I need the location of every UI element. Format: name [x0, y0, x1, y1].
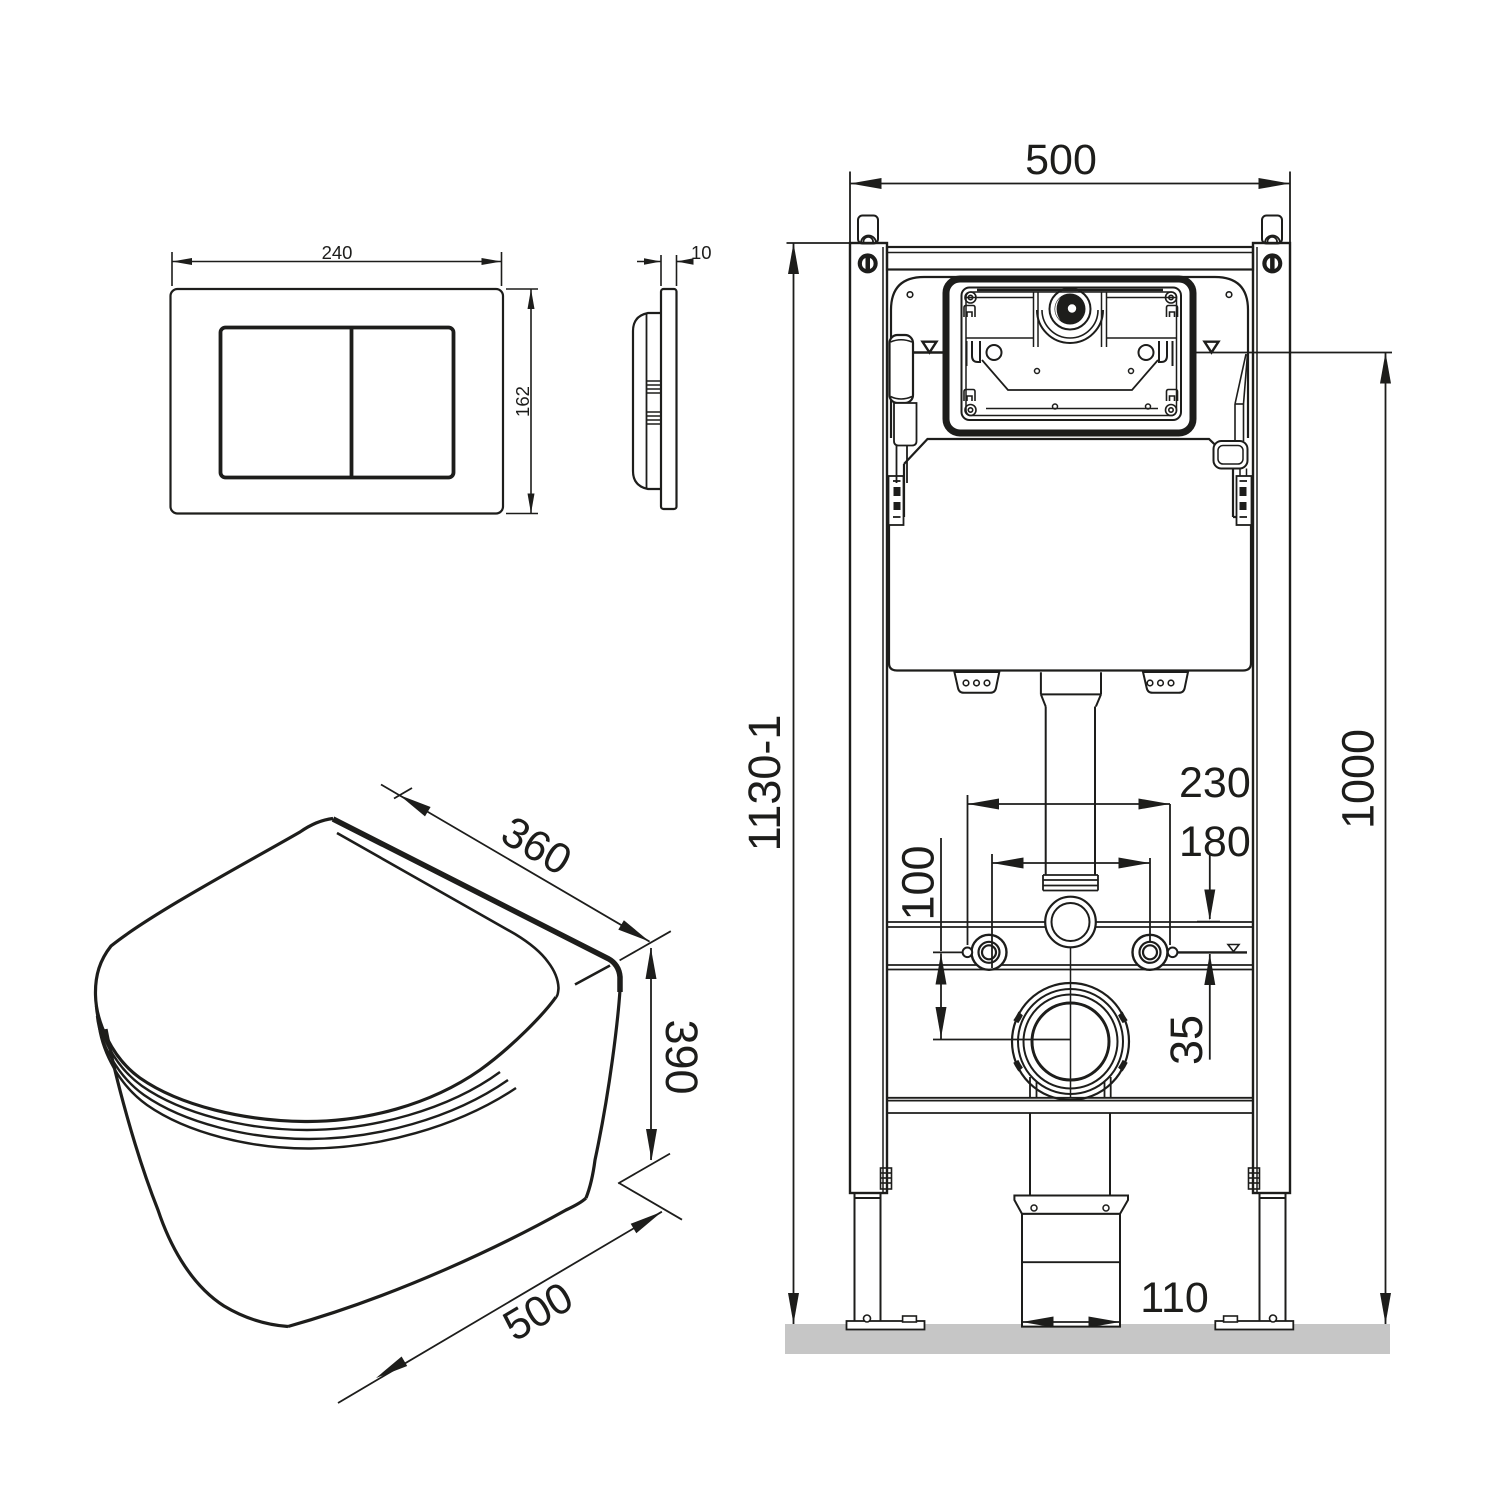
svg-text:390: 390 [656, 1019, 707, 1094]
svg-text:35: 35 [1161, 1015, 1212, 1065]
svg-text:1130-1: 1130-1 [739, 715, 790, 852]
svg-text:500: 500 [1025, 136, 1097, 184]
svg-text:100: 100 [893, 845, 944, 920]
svg-text:162: 162 [512, 386, 533, 417]
svg-text:10: 10 [691, 242, 712, 263]
svg-text:1000: 1000 [1333, 729, 1384, 829]
svg-text:230: 230 [1179, 759, 1251, 807]
svg-text:180: 180 [1179, 818, 1251, 866]
svg-text:110: 110 [1140, 1274, 1209, 1322]
svg-text:240: 240 [322, 242, 353, 263]
